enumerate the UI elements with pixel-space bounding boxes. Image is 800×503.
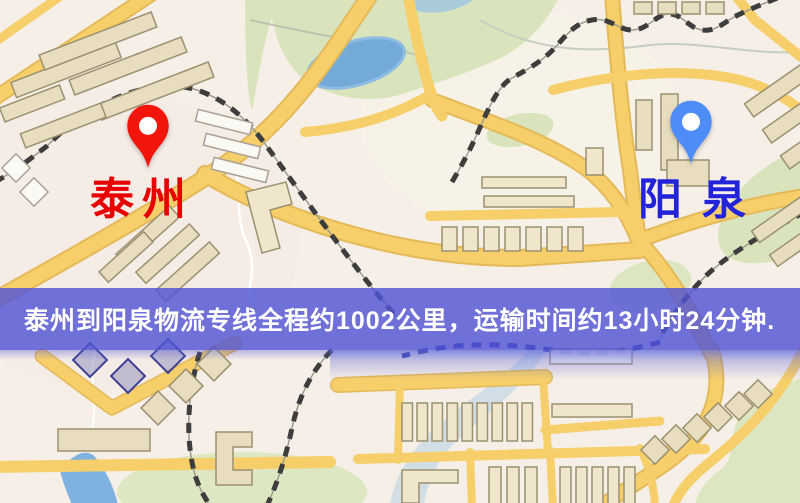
- destination-label: 阳泉: [638, 178, 766, 222]
- map-background: [0, 0, 800, 503]
- origin-pin-shape: [127, 105, 168, 168]
- map-canvas[interactable]: 泰州 阳泉 泰州到阳泉物流专线全程约1002公里，运输时间约13小时24分钟.: [0, 0, 800, 503]
- destination-pin-shape: [670, 101, 711, 164]
- route-info-banner: 泰州到阳泉物流专线全程约1002公里，运输时间约13小时24分钟.: [0, 288, 800, 350]
- destination-pin-hole: [682, 113, 700, 131]
- origin-label: 泰州: [90, 178, 194, 222]
- origin-pin[interactable]: [121, 102, 175, 174]
- origin-pin-hole: [139, 117, 157, 135]
- destination-pin[interactable]: [664, 98, 718, 170]
- route-info-text: 泰州到阳泉物流专线全程约1002公里，运输时间约13小时24分钟.: [0, 288, 800, 350]
